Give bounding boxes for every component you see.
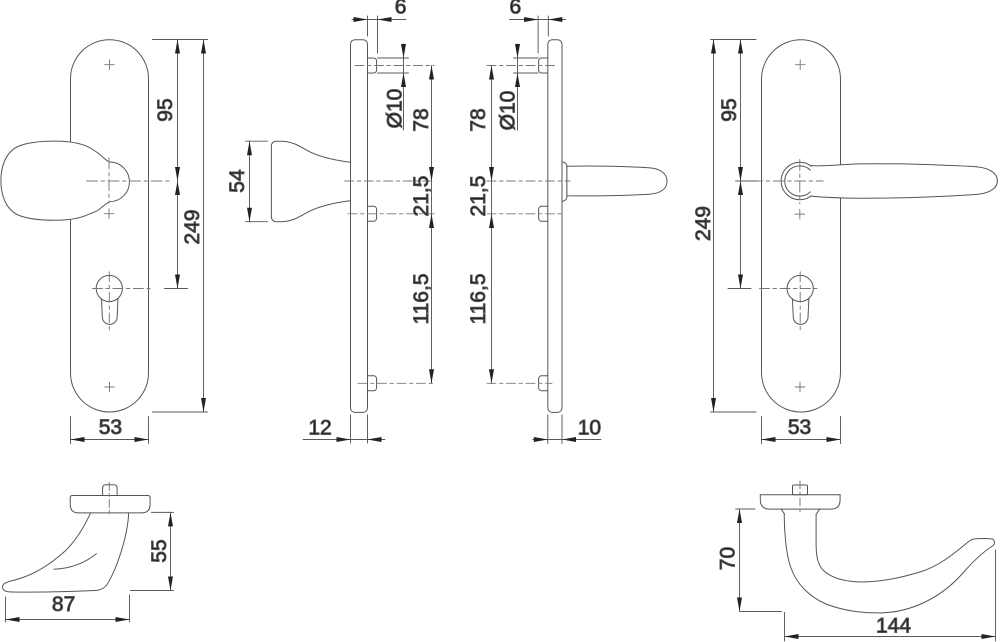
svg-text:116,5: 116,5 bbox=[410, 274, 433, 325]
svg-text:12: 12 bbox=[308, 417, 331, 440]
svg-text:6: 6 bbox=[395, 0, 407, 19]
svg-text:144: 144 bbox=[876, 615, 911, 638]
svg-text:21,5: 21,5 bbox=[410, 176, 433, 217]
svg-text:116,5: 116,5 bbox=[467, 274, 490, 325]
svg-text:6: 6 bbox=[509, 0, 521, 19]
svg-text:78: 78 bbox=[410, 108, 433, 131]
svg-text:95: 95 bbox=[718, 98, 741, 121]
svg-text:249: 249 bbox=[181, 209, 204, 244]
svg-text:95: 95 bbox=[154, 98, 177, 121]
svg-text:70: 70 bbox=[717, 547, 740, 570]
svg-text:54: 54 bbox=[226, 169, 249, 193]
svg-text:249: 249 bbox=[692, 206, 715, 241]
svg-text:10: 10 bbox=[578, 417, 601, 440]
svg-text:78: 78 bbox=[467, 108, 490, 131]
svg-text:53: 53 bbox=[99, 416, 122, 439]
svg-text:53: 53 bbox=[788, 416, 811, 439]
svg-text:55: 55 bbox=[148, 539, 171, 562]
svg-text:Ø10: Ø10 bbox=[497, 91, 520, 131]
svg-text:Ø10: Ø10 bbox=[384, 89, 407, 129]
svg-text:87: 87 bbox=[52, 593, 75, 616]
svg-text:21,5: 21,5 bbox=[467, 176, 490, 217]
